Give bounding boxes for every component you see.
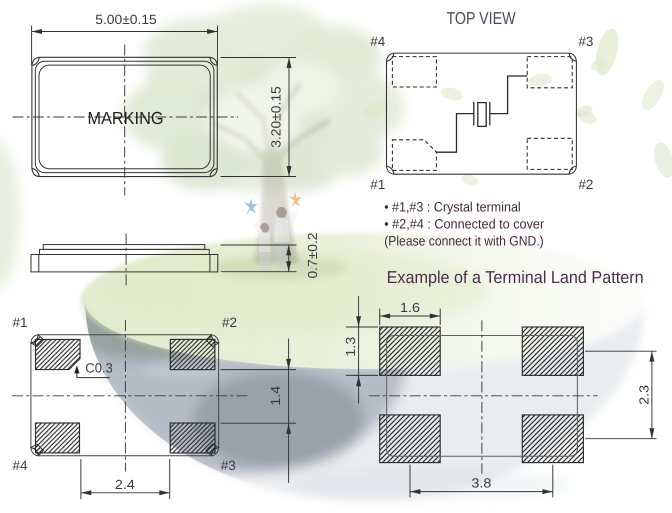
svg-text:2.3: 2.3 [636,385,651,405]
svg-text:MARKING: MARKING [88,108,164,128]
svg-text:#4: #4 [13,458,29,473]
svg-text:5.00±0.15: 5.00±0.15 [95,12,157,27]
svg-text:#2: #2 [578,177,593,192]
svg-text:#1: #1 [370,177,385,192]
svg-text:1.4: 1.4 [268,386,283,406]
svg-text:• #2,#4 : Connected to cover: • #2,#4 : Connected to cover [384,216,544,231]
svg-text:(Please connect it with GND.): (Please connect it with GND.) [384,233,544,248]
svg-text:#1: #1 [13,315,28,330]
svg-text:Example of a Terminal Land Pat: Example of a Terminal Land Pattern [387,267,644,287]
svg-text:#2: #2 [222,315,237,330]
svg-text:2.4: 2.4 [115,477,135,492]
svg-text:3.20±0.15: 3.20±0.15 [269,86,284,148]
svg-text:0.7±0.2: 0.7±0.2 [305,233,320,279]
svg-text:#3: #3 [221,458,236,473]
svg-text:C0.3: C0.3 [85,360,113,375]
svg-text:#3: #3 [578,34,593,49]
svg-text:1.3: 1.3 [343,337,358,357]
svg-text:TOP VIEW: TOP VIEW [447,8,517,28]
svg-text:3.8: 3.8 [471,476,491,491]
svg-text:#4: #4 [370,34,386,49]
svg-text:• #1,#3 : Crystal terminal: • #1,#3 : Crystal terminal [384,199,521,214]
svg-text:1.6: 1.6 [400,300,420,315]
